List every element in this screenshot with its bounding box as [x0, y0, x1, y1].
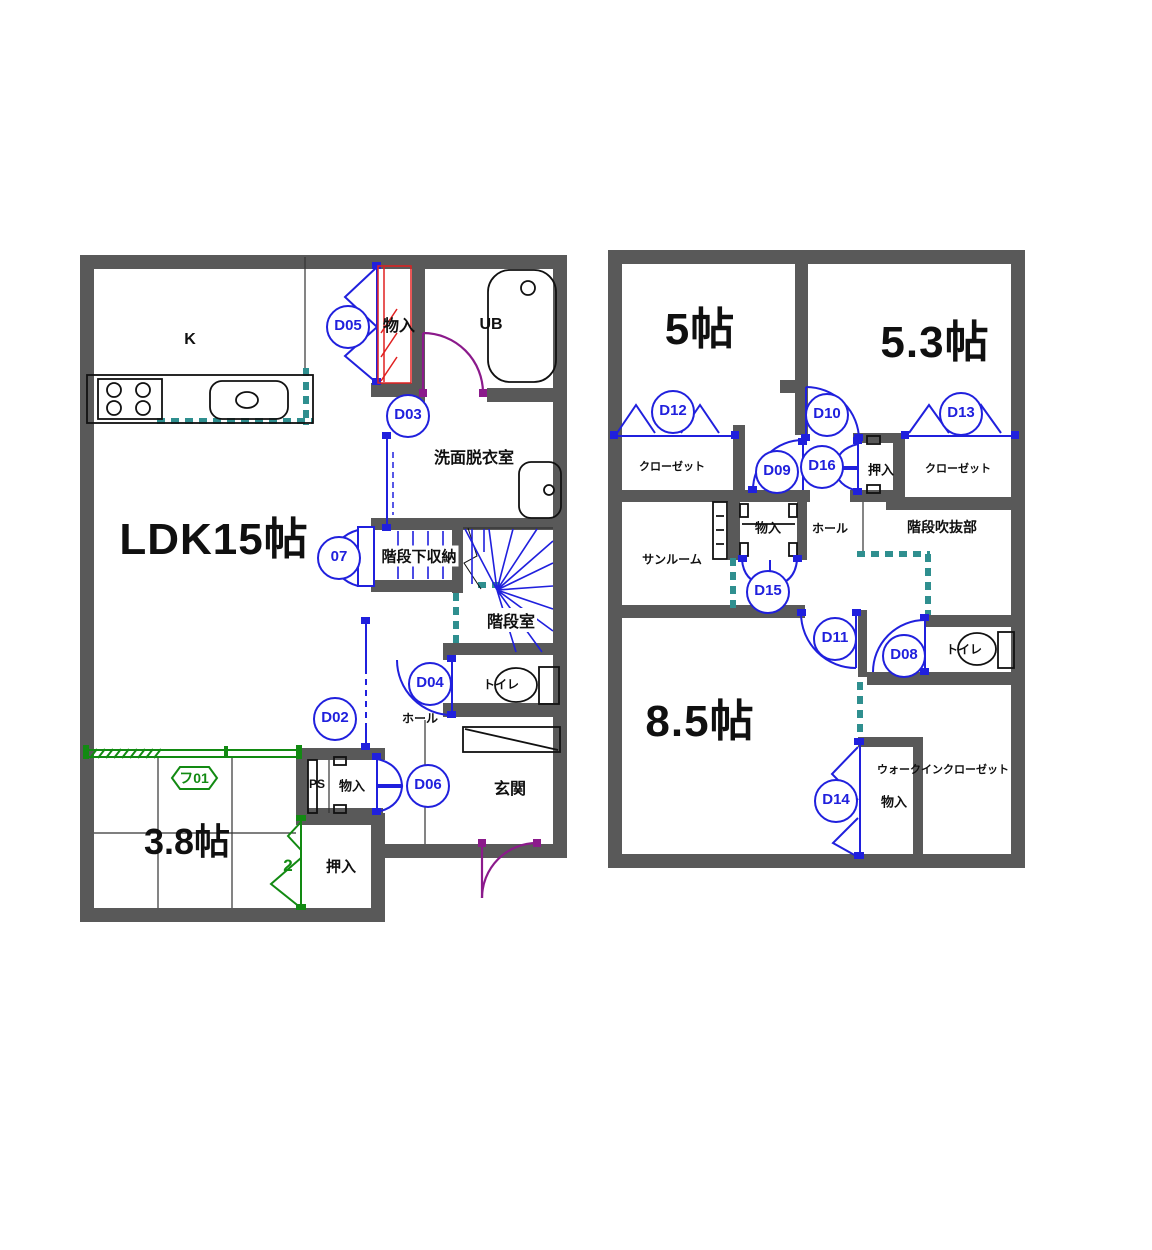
room-label-closet-right: クローゼット	[925, 460, 991, 476]
door-label-d09: D09	[755, 450, 799, 494]
sunroom-slider	[713, 502, 727, 559]
room-label-hall-2f: ホール	[812, 520, 848, 537]
room-label-stair-void: 階段吹抜部	[907, 517, 977, 537]
door-label-d12: D12	[651, 390, 695, 434]
door-d03-slider	[387, 437, 393, 530]
room-label-wic: ウォークインクローゼット	[877, 761, 1009, 777]
kitchen-counter	[87, 375, 313, 423]
door-label-d16: D16	[800, 445, 844, 489]
room-label-tatami: 3.8帖	[144, 813, 230, 865]
door-d06-double	[377, 758, 402, 813]
door-jambs-1f	[361, 262, 456, 815]
door-label-d06: D06	[406, 764, 450, 808]
room-label-understair: 階段下収納	[379, 546, 458, 567]
room-label-closet-mid: 物入	[755, 518, 781, 537]
room-label-oshiire-2f: 押入	[868, 460, 894, 479]
stair-break-line	[464, 528, 481, 589]
room-label-toilet-2f: トイレ	[946, 641, 982, 658]
room-label-washroom: 洗面脱衣室	[434, 444, 514, 468]
room-label-closet-top: 物入	[383, 312, 415, 336]
entrance-step	[463, 727, 560, 752]
room-label-hall-1f: ホール	[402, 710, 438, 727]
room-label-wic-closet: 物入	[881, 792, 907, 811]
door-label-d02: D02	[313, 697, 357, 741]
room-label-tatami-note: 2	[283, 856, 292, 876]
stove	[98, 379, 162, 419]
room-label-closet-left: クローゼット	[639, 458, 705, 474]
window-tatami	[86, 749, 299, 758]
room-label-toilet-1f: トイレ	[483, 676, 519, 693]
room-label-ps: PS	[309, 777, 325, 791]
floor-plan-canvas: K 物入 UB 洗面脱衣室 LDK15帖 階段下収納 階段室 ホール トイレ 玄…	[0, 0, 1152, 1250]
door-label-d13: D13	[939, 392, 983, 436]
room-label-entrance: 玄関	[494, 775, 526, 799]
room-label-sunroom: サンルーム	[642, 551, 702, 568]
door-label-d14: D14	[814, 779, 858, 823]
door-label-d15: D15	[746, 570, 790, 614]
room-label-kitchen: K	[184, 331, 196, 349]
door-label-d08: D08	[882, 634, 926, 678]
door-label-d04: D04	[408, 662, 452, 706]
room-label-oshiire-1f: 押入	[326, 856, 356, 877]
door-label-d07: 07	[317, 536, 361, 580]
room-label-stairwell: 階段室	[485, 608, 537, 632]
door-label-d03: D03	[386, 394, 430, 438]
door-label-d10: D10	[805, 393, 849, 437]
room-label-closet-low: 物入	[339, 776, 365, 795]
room-label-5jo: 5帖	[665, 293, 735, 357]
door-bathroom-swing	[423, 333, 483, 393]
room-label-53jo: 5.3帖	[880, 306, 989, 370]
room-label-bath: UB	[479, 316, 502, 334]
room-label-85jo: 8.5帖	[645, 685, 754, 749]
kitchen-sink	[210, 381, 288, 419]
door-label-f01: フ01	[179, 768, 209, 788]
room-label-ldk: LDK15帖	[119, 503, 308, 567]
door-label-d05: D05	[326, 305, 370, 349]
door-label-d11: D11	[813, 617, 857, 661]
